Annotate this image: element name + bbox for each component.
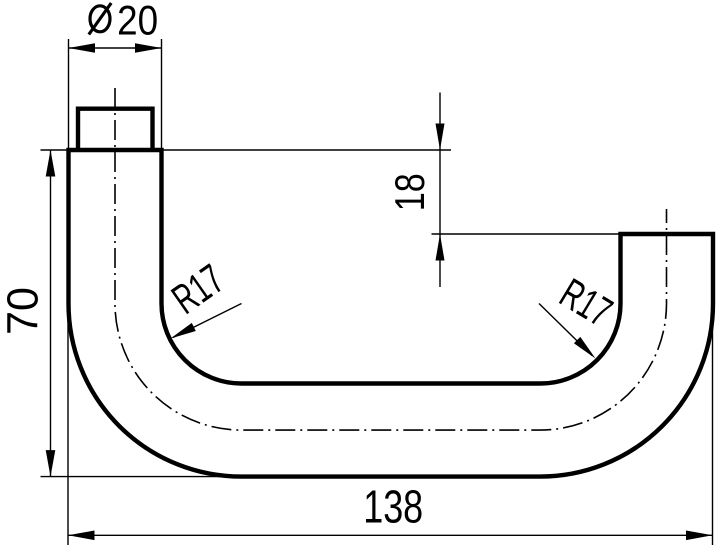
svg-text:138: 138	[363, 481, 423, 533]
svg-text:20: 20	[117, 0, 158, 43]
svg-text:70: 70	[0, 287, 47, 335]
svg-text:18: 18	[386, 173, 433, 211]
